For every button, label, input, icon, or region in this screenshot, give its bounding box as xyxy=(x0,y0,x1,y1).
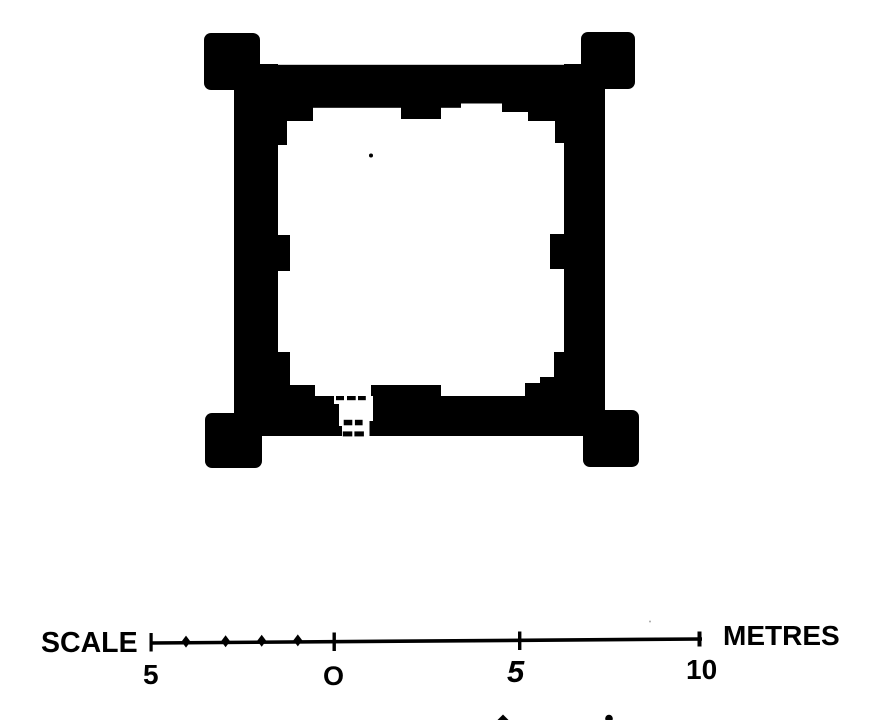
svg-text:5: 5 xyxy=(507,654,525,689)
svg-text:O: O xyxy=(323,661,344,691)
svg-text:5: 5 xyxy=(143,659,159,690)
svg-text:10: 10 xyxy=(686,654,717,685)
svg-text:METRES: METRES xyxy=(723,620,840,651)
svg-text:SCALE: SCALE xyxy=(41,627,138,659)
